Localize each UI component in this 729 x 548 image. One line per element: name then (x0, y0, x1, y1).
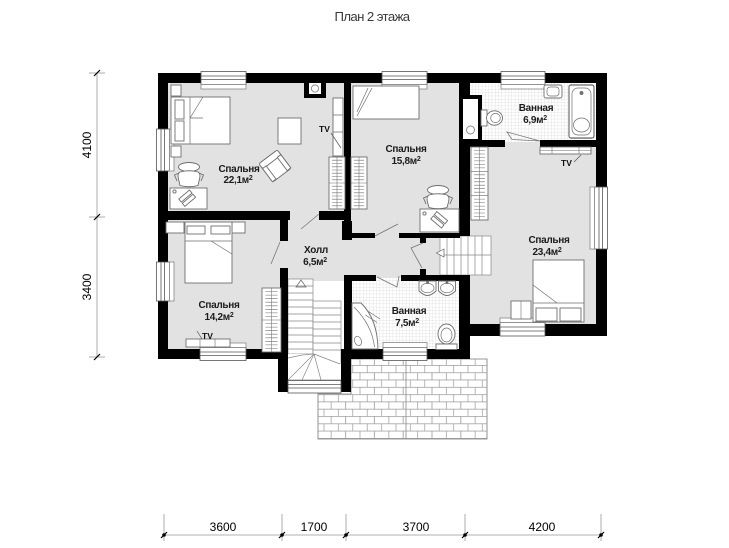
svg-text:TV: TV (202, 331, 213, 341)
svg-text:3600: 3600 (210, 520, 237, 534)
svg-text:4200: 4200 (529, 520, 556, 534)
svg-text:Спальня: Спальня (218, 164, 260, 175)
svg-text:Ванная: Ванная (519, 103, 554, 114)
svg-text:3700: 3700 (403, 520, 430, 534)
svg-text:Ванная: Ванная (392, 306, 427, 317)
svg-text:План 2 этажа: План 2 этажа (334, 9, 410, 24)
svg-text:14,2м2: 14,2м2 (205, 312, 234, 323)
svg-text:15,8м2: 15,8м2 (392, 156, 421, 167)
svg-text:Холл: Холл (304, 245, 328, 256)
svg-text:23,4м2: 23,4м2 (533, 247, 562, 258)
svg-text:TV: TV (319, 124, 330, 134)
svg-text:Спальня: Спальня (385, 144, 427, 155)
svg-text:4100: 4100 (80, 131, 94, 158)
svg-text:TV: TV (561, 158, 572, 168)
svg-text:Спальня: Спальня (528, 235, 570, 246)
svg-text:3400: 3400 (80, 273, 94, 300)
svg-text:1700: 1700 (301, 520, 328, 534)
svg-text:Спальня: Спальня (198, 300, 240, 311)
svg-text:22,1м2: 22,1м2 (224, 175, 253, 186)
